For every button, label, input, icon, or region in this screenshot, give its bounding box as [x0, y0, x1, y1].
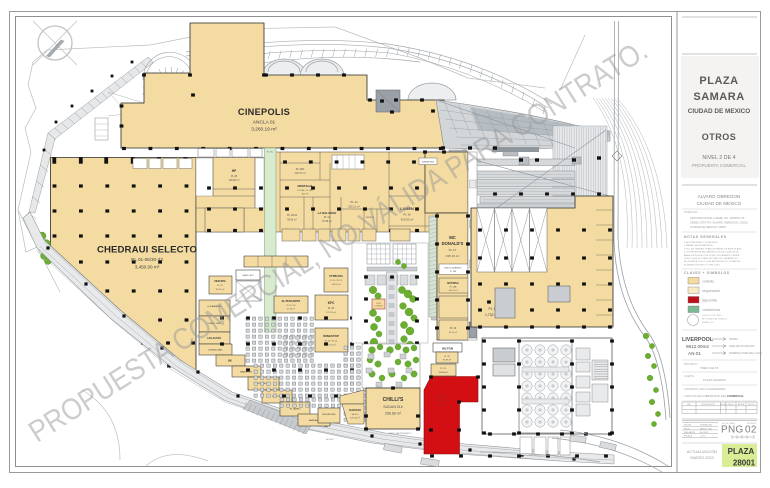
- svg-text:PL 29: PL 29: [217, 285, 223, 287]
- svg-text:2. AREAS: EN M² (METROS): 2. AREAS: EN M² (METROS): [684, 244, 713, 247]
- svg-text:COMERCIAL: COMERCIAL: [727, 394, 744, 398]
- svg-text:ACTUALIZACIÓN: ACTUALIZACIÓN: [687, 449, 718, 454]
- svg-text:9812.00m2: 9812.00m2: [686, 344, 709, 349]
- svg-text:PASEO GASTRONOMICO: PASEO GASTRONOMICO: [389, 432, 412, 435]
- svg-text:ZEN SPA: ZEN SPA: [214, 279, 226, 283]
- svg-text:KFC: KFC: [328, 301, 335, 305]
- svg-text:PL 09a: PL 09a: [267, 152, 274, 154]
- svg-text:125.58 m²: 125.58 m²: [350, 417, 360, 420]
- svg-text:CHEDRAUI SELECTO: CHEDRAUI SELECTO: [97, 245, 197, 256]
- svg-text:125.90 m²: 125.90 m²: [229, 179, 240, 182]
- svg-text:PL 33: PL 33: [440, 368, 446, 370]
- svg-text:AREA DE OCUPACION: AREA DE OCUPACION: [729, 345, 755, 348]
- svg-text:PL 18A: PL 18A: [450, 286, 457, 289]
- svg-text:3,260.19 m²: 3,260.19 m²: [251, 127, 277, 133]
- svg-text:1. ACOTACIONES: LOS METROS: 1. ACOTACIONES: LOS METROS: [684, 241, 718, 244]
- svg-text:CLAVES + SIMBOLOS: CLAVES + SIMBOLOS: [684, 271, 730, 275]
- svg-text:ESCALA: ESCALA: [684, 435, 693, 438]
- svg-text:PL 08: PL 08: [231, 175, 238, 178]
- svg-text:PLANTA PLAZA: PLANTA PLAZA: [706, 394, 726, 398]
- svg-text:PNG: PNG: [721, 425, 744, 436]
- svg-text:S. 28001 PL 30: S. 28001 PL 30: [434, 400, 450, 402]
- svg-text:CINEPOLIS: CINEPOLIS: [238, 107, 290, 117]
- svg-text:PLAZA: PLAZA: [699, 75, 738, 87]
- svg-text:3,450.00 m²: 3,450.00 m²: [135, 265, 160, 270]
- svg-text:97.87 m²: 97.87 m²: [443, 359, 451, 362]
- svg-text:PROPUESTA COMERCIAL: PROPUESTA COMERCIAL: [692, 163, 746, 168]
- svg-text:CONTENIDO GRAL: CONTENIDO GRAL: [684, 388, 706, 391]
- svg-text:ST*RBUCKS: ST*RBUCKS: [329, 276, 343, 278]
- svg-text:EL MISMO DISTINTO Y OTRO USO: EL MISMO DISTINTO Y OTRO USO: [684, 264, 720, 266]
- svg-text:BURGER KING: BURGER KING: [322, 414, 336, 416]
- svg-text:MARZO 2023: MARZO 2023: [700, 427, 713, 430]
- svg-text:ANCLA 01: ANCLA 01: [253, 120, 276, 126]
- svg-text:HECHO: HECHO: [684, 425, 692, 427]
- svg-text:LAMINA DE SECCION: LAMINA DE SECCION: [684, 395, 709, 398]
- svg-text:170.22 m²: 170.22 m²: [326, 311, 336, 314]
- svg-text:NO CUMPLA CON LO QUE EN PROYEC: NO CUMPLA CON LO QUE EN PROYECTO, CONSE …: [684, 260, 741, 263]
- svg-text:250.11 m²: 250.11 m²: [348, 205, 360, 209]
- svg-text:CIUDAD DE MEXICO: CIUDAD DE MEXICO: [697, 201, 742, 206]
- svg-text:HILTON: HILTON: [442, 347, 454, 351]
- svg-text:45.00 m²: 45.00 m²: [287, 308, 295, 311]
- svg-text:PL 21 / PL 22: PL 21 / PL 22: [330, 280, 343, 282]
- svg-text:PL 10/11: PL 10/11: [287, 213, 298, 217]
- svg-text:FECHA: FECHA: [720, 403, 727, 406]
- svg-text:CIRCULO DE GIRO: CIRCULO DE GIRO: [702, 315, 722, 317]
- svg-text:negociación: negociación: [702, 289, 720, 293]
- svg-text:NUTRISA: NUTRISA: [447, 281, 459, 285]
- svg-text:PL 32: PL 32: [444, 356, 450, 358]
- svg-text:FORMA CAD: FORMA CAD: [700, 424, 712, 427]
- svg-text:DONALD'S: DONALD'S: [442, 241, 464, 246]
- svg-text:NO VISIBLE AL PUBLICO: NO VISIBLE AL PUBLICO: [702, 317, 728, 320]
- svg-text:TIENDA: TIENDA: [729, 338, 738, 341]
- svg-text:PROYECTO: PROYECTO: [684, 363, 698, 366]
- svg-text:AN-01: AN-01: [688, 351, 701, 356]
- svg-text:ACCESO: ACCESO: [326, 438, 334, 441]
- svg-text:322.76 m²: 322.76 m²: [437, 403, 447, 406]
- svg-text:MODIFICACION: MODIFICACION: [701, 403, 715, 406]
- svg-text:DIBUJO: DIBUJO: [728, 404, 735, 406]
- svg-text:BK: BK: [228, 359, 232, 363]
- svg-text:PL 23 / PL 24: PL 23 / PL 24: [325, 341, 338, 343]
- svg-text:123.47 m²: 123.47 m²: [295, 172, 306, 175]
- svg-text:MC: MC: [449, 235, 456, 240]
- svg-text:FECH: FECH: [684, 428, 690, 430]
- svg-text:LONDON: LONDON: [375, 306, 383, 308]
- svg-text:PLAZA 123: PLAZA 123: [436, 395, 448, 398]
- svg-text:3. NO. DE TIENDAS: PLANO A TRA: 3. NO. DE TIENDAS: PLANO A TRAVES DE EST…: [684, 247, 742, 250]
- svg-text:DENTALIA: DENTALIA: [298, 184, 314, 188]
- svg-text:PL 17: PL 17: [449, 248, 457, 252]
- svg-text:28001: 28001: [733, 459, 756, 468]
- svg-text:100.70 m²: 100.70 m²: [448, 289, 457, 292]
- svg-text:1:500: 1:500: [700, 436, 706, 438]
- svg-text:COMIDA VIAN: COMIDA VIAN: [208, 349, 223, 352]
- svg-text:PL 08A: PL 08A: [296, 167, 305, 171]
- svg-text:(SIMBOLO): (SIMBOLO): [702, 322, 714, 324]
- svg-text:126.28 m²: 126.28 m²: [438, 371, 447, 374]
- svg-text:NOTAS GENERALES: NOTAS GENERALES: [684, 235, 727, 239]
- svg-text:contrato: contrato: [702, 280, 714, 284]
- svg-text:LA BALANCE: LA BALANCE: [318, 211, 337, 215]
- svg-text:288.68 m²: 288.68 m²: [385, 412, 402, 416]
- svg-text:MARZO 2023: MARZO 2023: [690, 456, 713, 460]
- svg-text:APROB: APROB: [738, 403, 745, 406]
- svg-text:SA 01a: SA 01a: [351, 413, 359, 416]
- svg-text:54.70 m²: 54.70 m²: [449, 331, 457, 334]
- svg-text:ZEDEC SITA PO, ALVARO OBREGON,: ZEDEC SITA PO, ALVARO OBREGON, 01210: [690, 220, 748, 224]
- svg-text:DAISUKI: DAISUKI: [349, 408, 361, 412]
- svg-text:CLIENTE: CLIENTE: [684, 375, 695, 378]
- svg-text:LIVERPOOL: LIVERPOOL: [682, 337, 714, 343]
- svg-text:PLAZA: PLAZA: [728, 447, 755, 456]
- svg-text:AREA, ESTE ES A TITULO DEL COL: AREA, ESTE ES A TITULO DEL COLINDANTE, L…: [684, 254, 740, 257]
- svg-text:TRES CHLTZ: TRES CHLTZ: [700, 366, 718, 370]
- svg-text:4. EL PRESENTE RECTANGULO ES L: 4. EL PRESENTE RECTANGULO ES LA LOCAL DE…: [684, 251, 739, 254]
- svg-text:149.95 m²: 149.95 m²: [331, 283, 340, 286]
- svg-text:DIBUJANTE: DIBUJANTE: [684, 431, 696, 434]
- svg-text:OTROS: OTROS: [702, 132, 737, 142]
- svg-text:ALVARO OBREGON: ALVARO OBREGON: [698, 194, 741, 199]
- svg-text:PL 19: PL 19: [450, 327, 457, 330]
- svg-text:disponible: disponible: [702, 299, 717, 303]
- svg-text:PL 09b, PL 14B: PL 09b, PL 14B: [297, 190, 313, 192]
- svg-text:FLAGSHIPARA: FLAGSHIPARA: [706, 387, 726, 391]
- svg-text:PL 50 / 53: PL 50 / 53: [286, 305, 296, 307]
- svg-text:ALONSO: ALONSO: [700, 431, 709, 434]
- svg-text:EL PESCADITO: EL PESCADITO: [282, 300, 300, 303]
- svg-text:AUTOR: AUTOR: [748, 403, 755, 406]
- svg-text:EL JARRO: EL JARRO: [290, 408, 301, 411]
- svg-text:PL 25: PL 25: [328, 307, 335, 310]
- svg-text:02: 02: [745, 425, 757, 436]
- svg-text:CIUDAD DE MEXICO: CIUDAD DE MEXICO: [688, 108, 751, 115]
- svg-text:CHILLI'S: CHILLI'S: [383, 397, 404, 403]
- svg-text:ANTONIO DOVALI JAIME, NO. WORT: ANTONIO DOVALI JAIME, NO. WORTH 70,: [690, 216, 745, 220]
- svg-text:SUDAN 01b: SUDAN 01b: [383, 405, 403, 409]
- svg-text:300 m²: 300 m²: [302, 193, 309, 196]
- svg-text:PL 14: PL 14: [350, 200, 358, 204]
- svg-text:SAMARA: SAMARA: [693, 91, 744, 103]
- svg-text:PL 13: PL 13: [324, 216, 331, 219]
- svg-text:WINGSTOP: WINGSTOP: [323, 334, 339, 338]
- svg-text:CIUDAD DE MEXICO CDMX: CIUDAD DE MEXICO CDMX: [690, 225, 726, 229]
- svg-text:435.16 m²: 435.16 m²: [446, 254, 460, 258]
- svg-text:DELTO QUERIDO: DELTO QUERIDO: [444, 268, 461, 270]
- svg-text:90.00 m²: 90.00 m²: [287, 219, 297, 222]
- svg-text:NIVEL 2 DE 4: NIVEL 2 DE 4: [702, 155, 735, 161]
- svg-text:87.86 m²: 87.86 m²: [322, 220, 332, 223]
- svg-text:NOMENCLATURA DEL LOCAL: NOMENCLATURA DEL LOCAL: [729, 352, 763, 355]
- svg-text:PLAZA SAMARA: PLAZA SAMARA: [703, 378, 726, 382]
- svg-text:POR LO QUE EL PLANO ACTUAL DEL: POR LO QUE EL PLANO ACTUAL DEL DESARROLL…: [684, 257, 739, 260]
- svg-text:condóminos: condóminos: [702, 308, 721, 312]
- svg-text:DOMICILIO: DOMICILIO: [684, 210, 698, 214]
- svg-text:PL 18B: PL 18B: [450, 271, 457, 273]
- svg-text:90.11 m²: 90.11 m²: [216, 288, 225, 291]
